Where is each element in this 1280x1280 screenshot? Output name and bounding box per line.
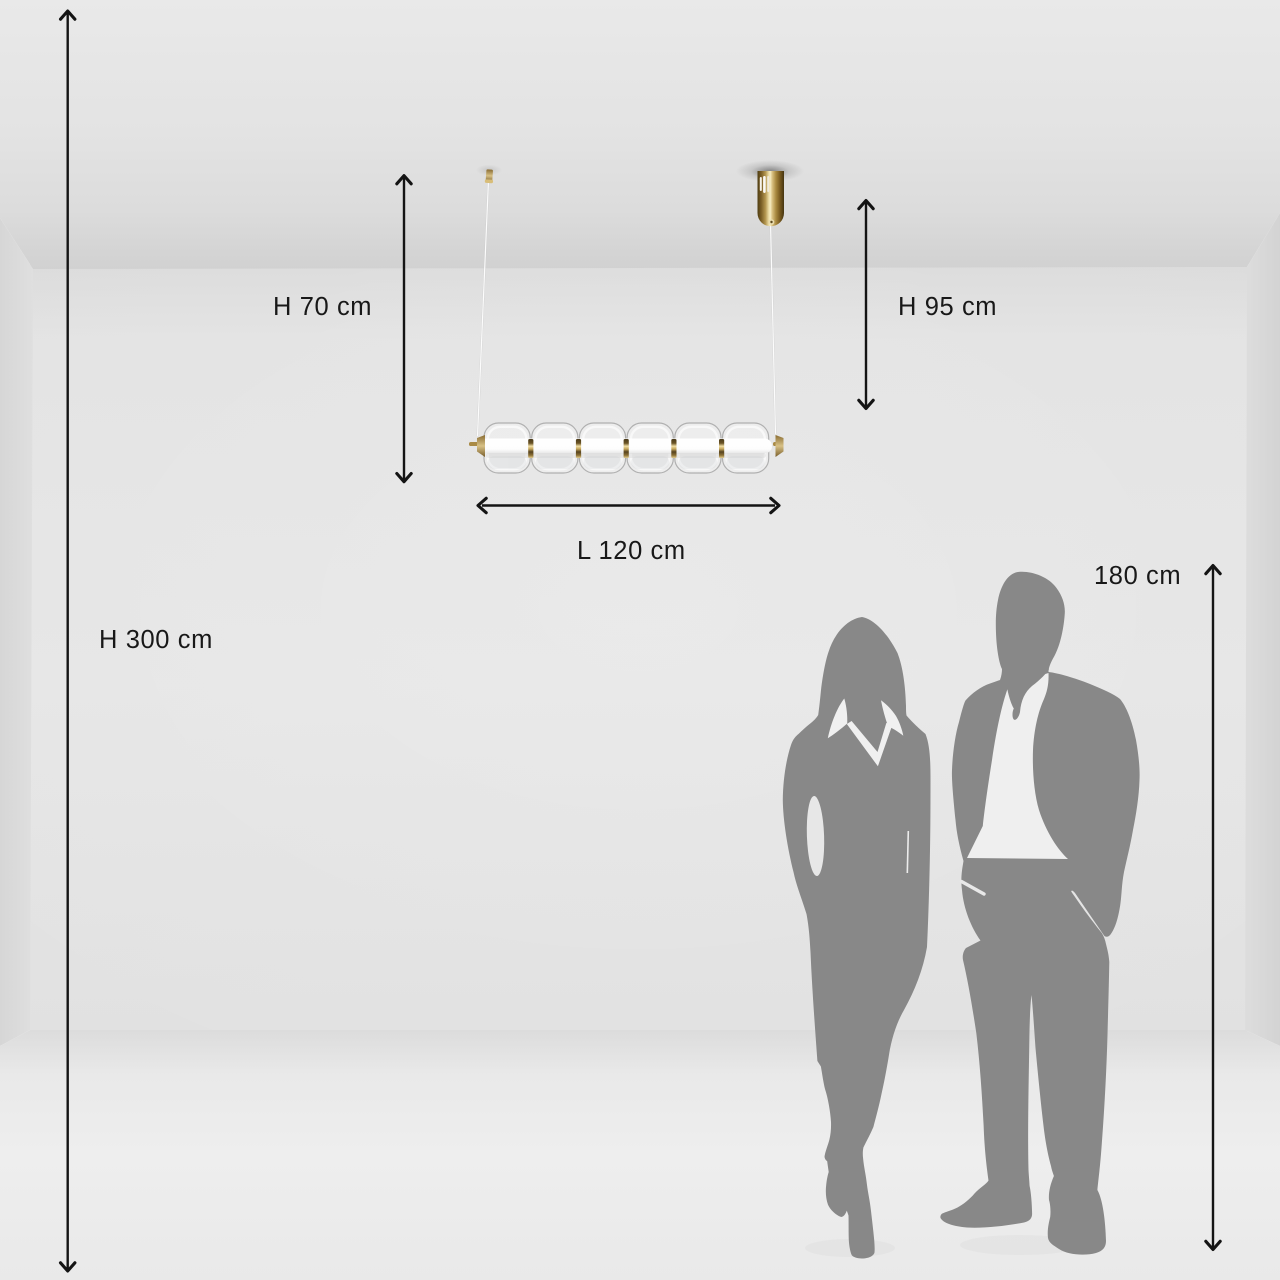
- svg-text:H 95 cm: H 95 cm: [898, 293, 997, 321]
- svg-text:H 70 cm: H 70 cm: [273, 293, 372, 321]
- svg-text:180 cm: 180 cm: [1094, 562, 1181, 590]
- svg-text:L 120 cm: L 120 cm: [577, 537, 686, 565]
- svg-text:H 300 cm: H 300 cm: [99, 626, 213, 654]
